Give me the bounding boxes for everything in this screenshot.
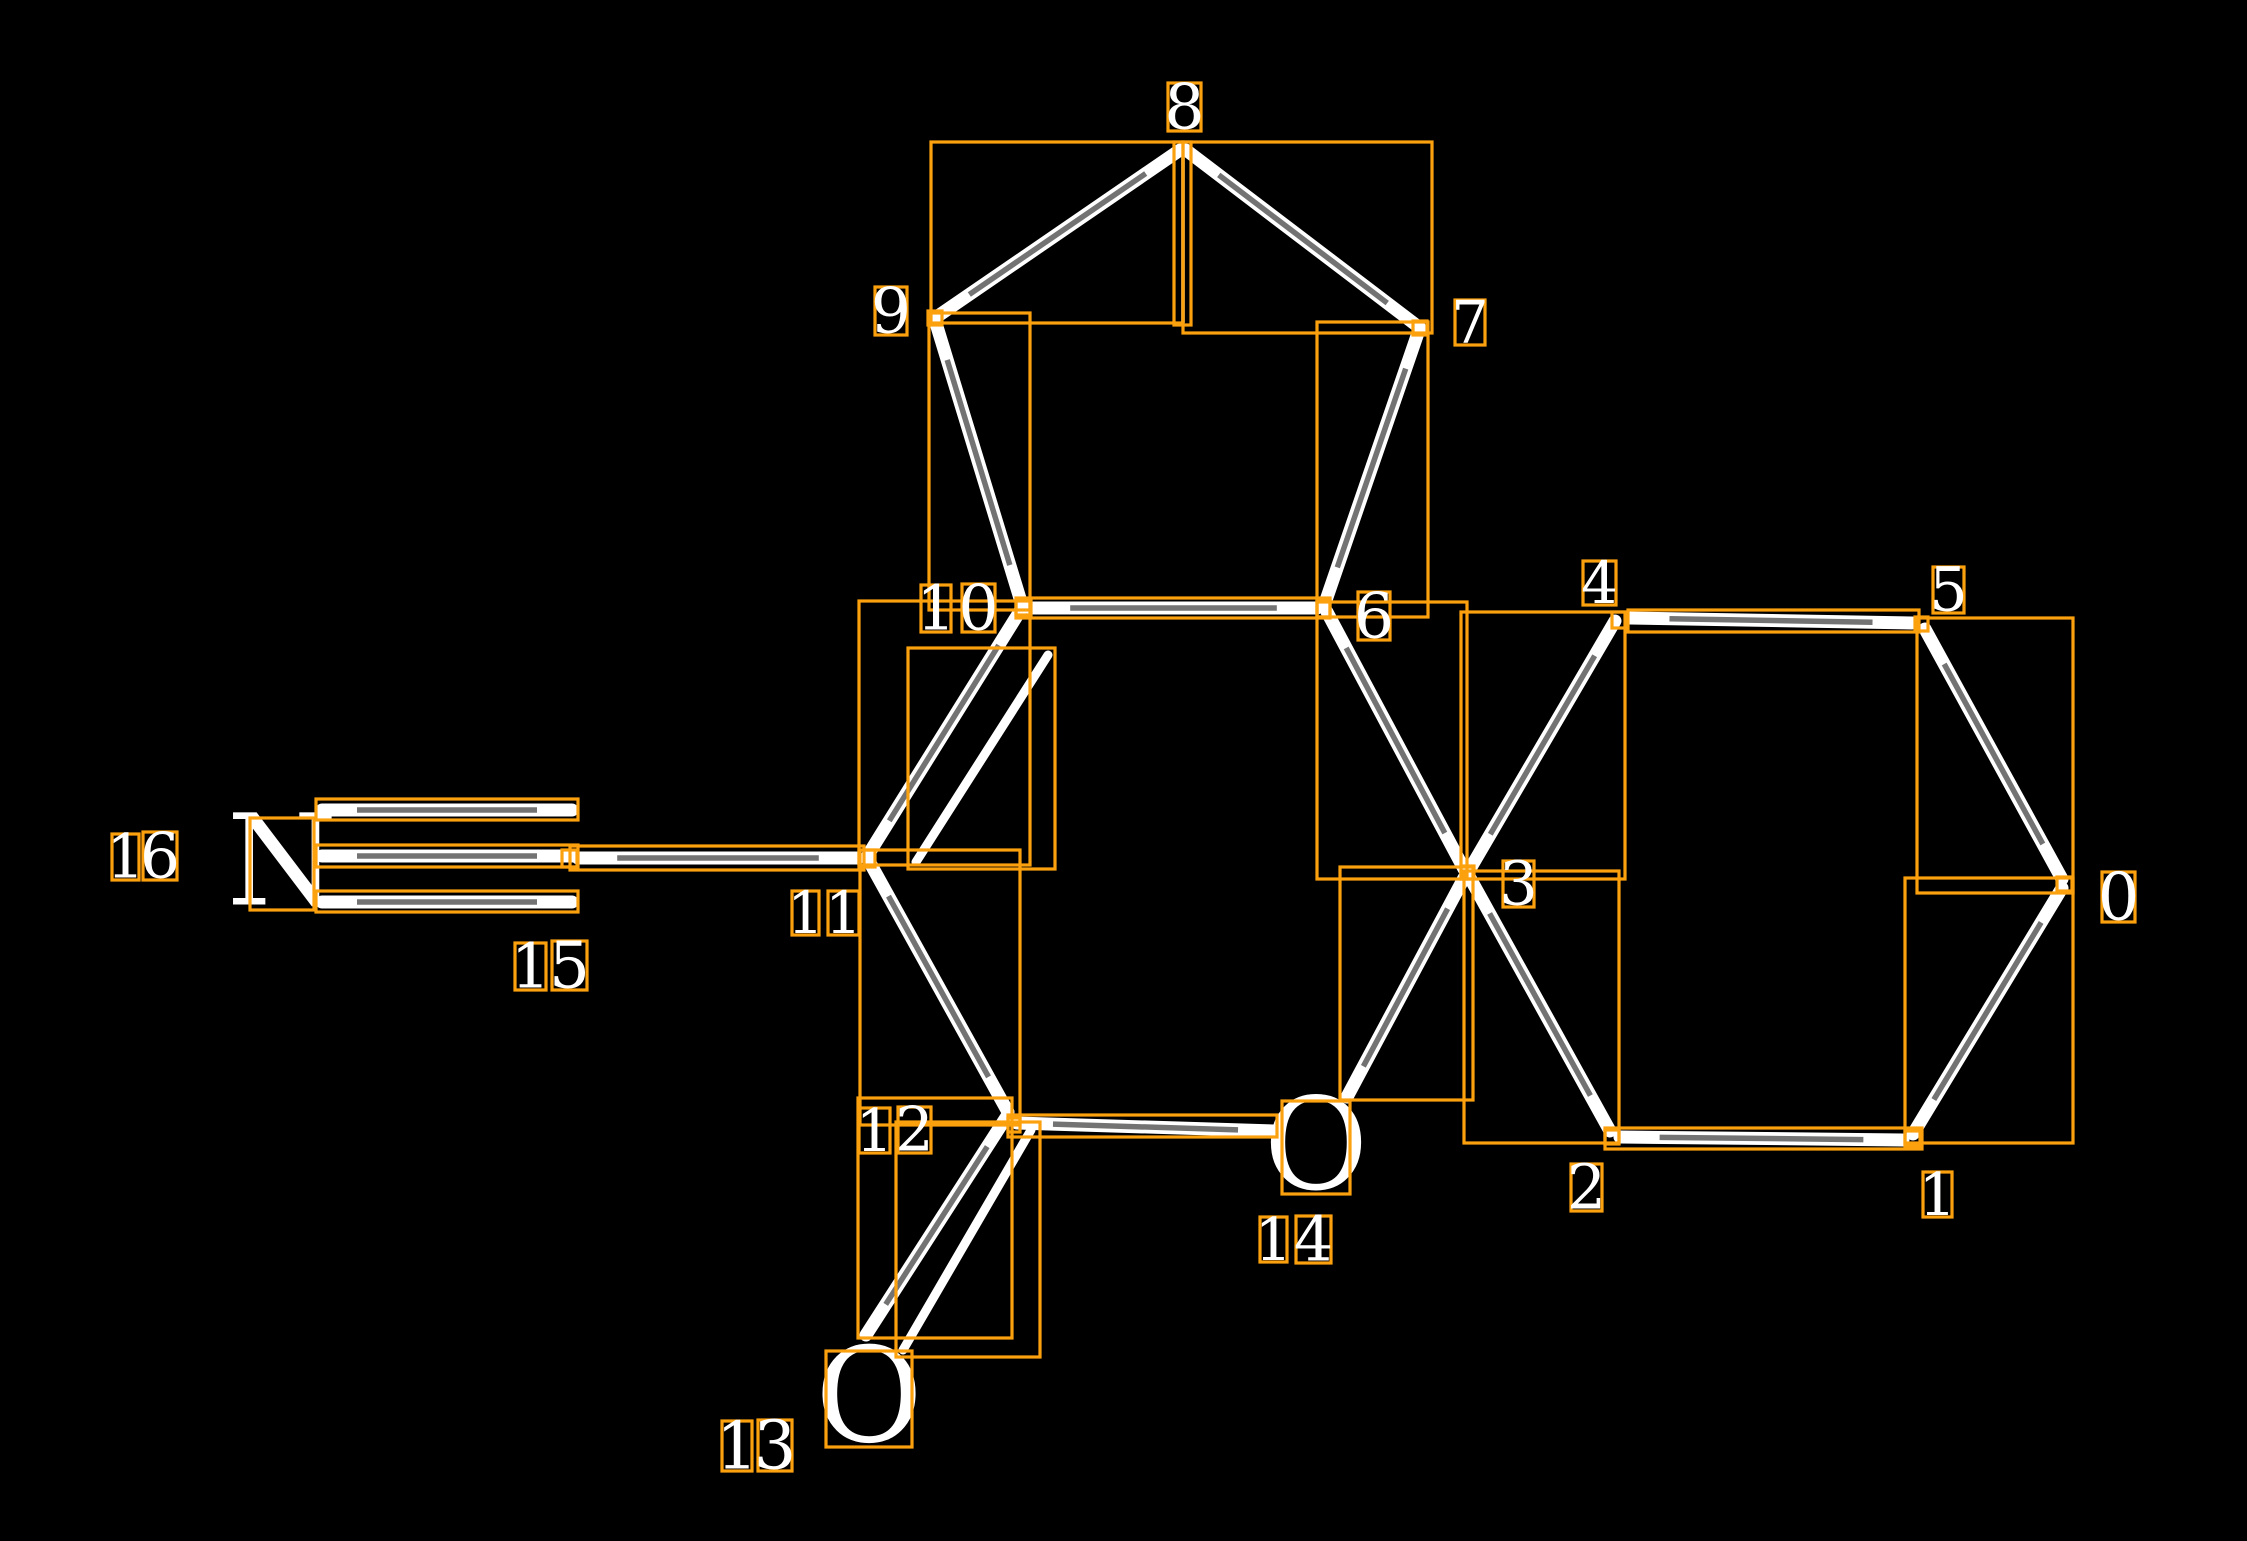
index-label-12-digit-0: 1 <box>856 1096 894 1165</box>
index-label-14-digit-1: 4 <box>1294 1204 1333 1276</box>
bond-11-12-core <box>888 896 988 1077</box>
bond-8-7-core <box>1219 175 1387 303</box>
index-label-14-digit-0: 1 <box>1255 1205 1293 1274</box>
index-label-0-digit-0: 0 <box>2098 859 2140 936</box>
index-label-9-digit-0: 9 <box>871 274 911 348</box>
bond-6-3-core <box>1346 648 1445 833</box>
index-label-2-digit-0: 2 <box>1567 1152 1606 1224</box>
index-label-3-digit-0: 3 <box>1499 850 1538 920</box>
bond-1-2-core <box>1660 1137 1864 1139</box>
bond-9-10-core <box>947 360 1010 565</box>
bond-7-6-core <box>1337 369 1405 568</box>
index-label-7-digit-0: 7 <box>1451 288 1489 357</box>
index-label-10-digit-0: 1 <box>916 573 955 645</box>
index-label-10-digit-1: 0 <box>958 571 998 645</box>
bond-9-8-core <box>969 174 1145 295</box>
bond-3-14-core <box>1363 909 1447 1067</box>
bond-4-5-core <box>1669 619 1872 623</box>
index-label-11-digit-1: 1 <box>825 879 862 947</box>
bond-10-11-main-core <box>889 645 998 821</box>
molecule-annotation-canvas: NOO012345678910111213141516 <box>0 0 2247 1541</box>
bond-0-1-core <box>1934 922 2041 1099</box>
index-label-1-digit-0: 1 <box>1919 1160 1957 1229</box>
index-label-13-digit-1: 3 <box>754 1406 797 1484</box>
bond-10-11-inner <box>916 655 1048 862</box>
index-label-11-digit-0: 1 <box>787 879 824 947</box>
index-label-13-digit-0: 1 <box>716 1408 758 1485</box>
index-label-8-digit-0: 8 <box>1164 70 1204 144</box>
index-label-15-digit-0: 1 <box>511 931 550 1003</box>
index-label-6-digit-0: 6 <box>1354 579 1394 653</box>
index-label-15-digit-1: 5 <box>549 929 590 1004</box>
bond-5-0-core <box>1944 664 2043 844</box>
hetero-atom-letter-O-2: O <box>815 1320 923 1473</box>
hetero-atom-letter-O-1: O <box>1264 1071 1368 1219</box>
bond-3-4-core <box>1490 656 1594 835</box>
index-label-4-digit-0: 4 <box>1581 549 1618 617</box>
bond-2-3-core <box>1490 913 1591 1095</box>
index-label-5-digit-0: 5 <box>1929 556 1968 626</box>
index-label-16-digit-1: 6 <box>140 819 180 893</box>
index-label-12-digit-1: 2 <box>895 1096 934 1166</box>
molecule-svg: NOO012345678910111213141516 <box>0 0 2247 1541</box>
